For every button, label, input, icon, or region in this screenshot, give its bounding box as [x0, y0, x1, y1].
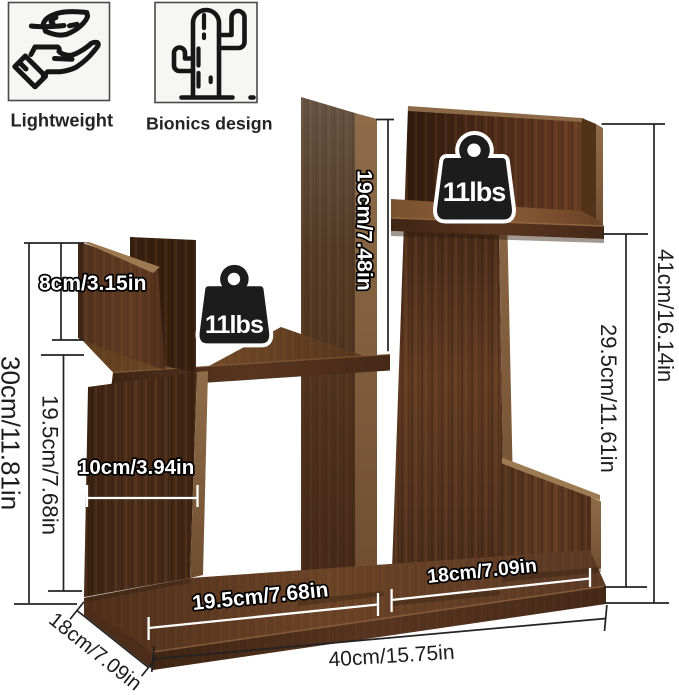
svg-text:Lightweight: Lightweight: [11, 110, 114, 131]
svg-text:19.5cm/7.68in: 19.5cm/7.68in: [38, 395, 63, 535]
svg-text:11lbs: 11lbs: [205, 311, 263, 339]
svg-text:29.5cm/11.61in: 29.5cm/11.61in: [596, 324, 621, 473]
svg-text:11lbs: 11lbs: [443, 177, 506, 207]
svg-text:8cm/3.15in: 8cm/3.15in: [39, 272, 146, 295]
svg-text:41cm/16.14in: 41cm/16.14in: [653, 249, 678, 382]
svg-text:Bionics design: Bionics design: [146, 114, 272, 134]
svg-text:10cm/3.94in: 10cm/3.94in: [78, 456, 194, 479]
svg-text:19cm/7.48in: 19cm/7.48in: [353, 170, 377, 291]
svg-text:30cm/11.81in: 30cm/11.81in: [0, 356, 26, 510]
